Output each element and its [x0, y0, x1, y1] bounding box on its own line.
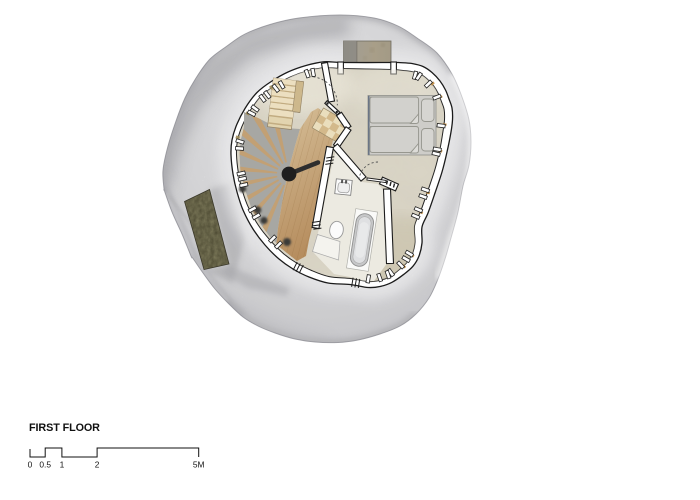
- svg-text:0.5: 0.5: [39, 460, 51, 470]
- svg-text:2: 2: [95, 460, 100, 470]
- svg-text:FIRST FLOOR: FIRST FLOOR: [29, 422, 100, 434]
- svg-text:5M: 5M: [193, 460, 205, 470]
- svg-text:0: 0: [28, 460, 33, 470]
- svg-text:1: 1: [60, 460, 65, 470]
